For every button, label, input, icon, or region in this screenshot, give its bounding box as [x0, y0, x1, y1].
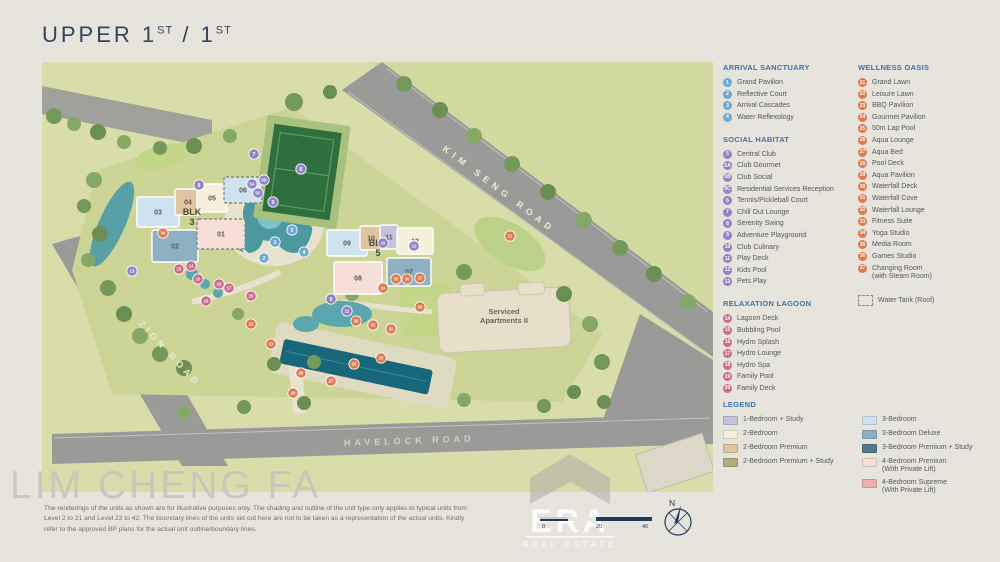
svg-text:7: 7	[253, 152, 256, 158]
svg-text:10: 10	[381, 241, 386, 246]
map-marker-9: 9	[326, 294, 336, 304]
amenity-item: 31Waterfall Cove	[858, 194, 998, 203]
amenity-number-badge: 7	[723, 208, 732, 217]
amenity-number-badge: 31	[858, 194, 867, 203]
amenity-section-social: SOCIAL HABITAT5Central Club5AClub Gourme…	[723, 135, 855, 287]
amenity-label: Fitness Suite	[872, 217, 912, 226]
legend-label: 3-Bedroom Premium + Study	[882, 443, 972, 452]
map-marker-27: 27	[326, 376, 336, 386]
legend-item: 2-Bedroom Premium + Study	[723, 457, 853, 467]
svg-text:21: 21	[508, 234, 513, 239]
svg-text:15: 15	[177, 267, 182, 272]
amenity-label: Grand Lawn	[872, 78, 910, 87]
amenity-label: Family Pool	[737, 372, 774, 381]
map-marker-24: 24	[378, 283, 388, 293]
amenity-number-badge: 13	[723, 277, 732, 286]
site-plan-map: ServicedApartments II	[42, 62, 713, 492]
map-marker-10: 10	[378, 238, 388, 248]
amenity-label: Residential Services Reception	[737, 185, 834, 194]
svg-text:22: 22	[249, 322, 254, 327]
amenity-label: Lagoon Deck	[737, 314, 778, 323]
era-logo-subtext: REAL ESTATE	[523, 539, 618, 549]
legend-label: 3-Bedroom	[882, 415, 917, 424]
amenity-item: 4Water Reflexology	[723, 113, 855, 122]
map-marker-22: 22	[246, 319, 256, 329]
legend-item: 4-Bedroom Premium(With Private Lift)	[862, 457, 992, 474]
unit-number: 03	[154, 210, 162, 217]
map-marker-35: 35	[391, 274, 401, 284]
svg-text:4: 4	[303, 250, 306, 256]
scale-label: 0	[542, 524, 545, 530]
amenity-item: 26Aqua Lounge	[858, 136, 998, 145]
unit-number: 02	[171, 244, 179, 251]
map-marker-7: 7	[249, 149, 259, 159]
amenity-item: 9Adventure Playground	[723, 231, 855, 240]
map-marker-18: 18	[214, 279, 224, 289]
svg-text:33: 33	[418, 305, 423, 310]
amenity-item: 30Waterfall Deck	[858, 182, 998, 191]
map-marker-5B: 5B	[259, 175, 269, 185]
amenity-item: 24Gourmet Pavilion	[858, 113, 998, 122]
svg-text:9: 9	[330, 297, 333, 303]
amenity-number-badge: 34	[858, 229, 867, 238]
svg-text:37: 37	[418, 276, 423, 281]
legend-title: LEGEND	[723, 400, 999, 409]
amenity-number-badge: 21	[858, 78, 867, 87]
map-marker-19: 19	[201, 296, 211, 306]
amenity-item: 5CResidential Services Reception	[723, 185, 855, 194]
water-tank-icon	[858, 295, 873, 306]
amenity-item: 20Family Deck	[723, 384, 855, 393]
amenity-label: Hydro Spa	[737, 361, 770, 370]
svg-text:19: 19	[204, 299, 209, 304]
amenity-item: 15Bubbling Pool	[723, 326, 855, 335]
map-marker-11: 11	[342, 306, 352, 316]
amenity-item: 6Tennis/Pickleball Court	[723, 196, 855, 205]
amenity-item: 32Waterfall Lounge	[858, 206, 998, 215]
amenity-item: 2550m Lap Pool	[858, 124, 998, 133]
svg-text:32: 32	[389, 327, 394, 332]
amenity-label: Chill Out Lounge	[737, 208, 789, 217]
legend-swatch	[862, 430, 877, 439]
map-marker-2: 2	[259, 253, 269, 263]
map-marker-5A: 5A	[247, 179, 257, 189]
amenity-number-badge: 25	[858, 124, 867, 133]
amenity-item: 35Media Room	[858, 240, 998, 249]
amenity-item: 10Club Culinary	[723, 243, 855, 252]
legend-swatch	[862, 458, 877, 467]
map-marker-4: 4	[299, 247, 309, 257]
amenity-item: 37Changing Room(with Steam Room)	[858, 264, 998, 281]
amenity-label: Aqua Lounge	[872, 136, 914, 145]
amenity-item: 17Hydro Lounge	[723, 349, 855, 358]
legend-item: 3-Bedroom Deluxe	[862, 429, 992, 439]
map-marker-29: 29	[288, 388, 298, 398]
map-marker-33: 33	[415, 302, 425, 312]
amenity-label: Leisure Lawn	[872, 90, 914, 99]
legend-swatch	[862, 479, 877, 488]
map-marker-14: 14	[186, 261, 196, 271]
amenity-number-badge: 26	[858, 136, 867, 145]
water-tank-label: Water Tank (Roof)	[878, 296, 934, 305]
amenity-number-badge: 37	[858, 264, 867, 273]
amenity-label: Media Room	[872, 240, 912, 249]
amenity-item: 27Aqua Bed	[858, 148, 998, 157]
unit-number: 08	[354, 276, 362, 283]
map-marker-20: 20	[246, 291, 256, 301]
map-marker-21: 21	[505, 231, 515, 241]
svg-text:35: 35	[394, 277, 399, 282]
amenity-item: 13Pets Play	[723, 277, 855, 286]
amenity-number-badge: 5	[723, 150, 732, 159]
legend-swatch	[723, 458, 738, 467]
amenity-item: 23BBQ Pavilion	[858, 101, 998, 110]
legend-panel-right-column: WELLNESS OASIS21Grand Lawn22Leisure Lawn…	[858, 63, 998, 306]
legend-label: 4-Bedroom Supreme(With Private Lift)	[882, 478, 947, 495]
unit-number: 01	[217, 232, 225, 239]
amenity-number-badge: 4	[723, 113, 732, 122]
svg-text:3: 3	[291, 228, 294, 234]
amenity-number-badge: 23	[858, 101, 867, 110]
amenity-label: Waterfall Deck	[872, 182, 917, 191]
legend-swatch	[723, 416, 738, 425]
map-marker-28: 28	[376, 353, 386, 363]
amenity-number-badge: 12	[723, 266, 732, 275]
unit-footprint: 03	[137, 197, 179, 227]
amenity-label: Water Reflexology	[737, 113, 794, 122]
amenity-label-line2: (with Steam Room)	[872, 273, 932, 281]
agent-watermark: LIM CHENG FA	[10, 464, 321, 508]
scale-label: 20	[596, 524, 602, 530]
map-marker-31: 31	[368, 320, 378, 330]
legend-item: 3-Bedroom Premium + Study	[862, 443, 992, 453]
map-marker-37: 37	[415, 273, 425, 283]
page-title: UPPER 1ST / 1ST	[42, 22, 232, 48]
amenity-item: 11Play Deck	[723, 254, 855, 263]
amenity-section-title: RELAXATION LAGOON	[723, 299, 855, 308]
svg-text:34: 34	[161, 231, 166, 236]
svg-text:27: 27	[329, 379, 334, 384]
amenity-number-badge: 1	[723, 78, 732, 87]
amenity-item: 5Central Club	[723, 150, 855, 159]
amenity-label: Waterfall Cove	[872, 194, 918, 203]
map-marker-16: 16	[193, 274, 203, 284]
amenity-item: 7Chill Out Lounge	[723, 208, 855, 217]
amenity-number-badge: 2	[723, 90, 732, 99]
amenity-item: 19Family Pool	[723, 372, 855, 381]
amenity-item: 8Serenity Swing	[723, 219, 855, 228]
map-marker-30: 30	[351, 316, 361, 326]
amenity-number-badge: 18	[723, 361, 732, 370]
amenity-number-badge: 20	[723, 384, 732, 393]
svg-text:13: 13	[130, 269, 135, 274]
water-tank-legend-entry: Water Tank (Roof)	[858, 295, 998, 306]
amenity-item: 2Reflective Court	[723, 90, 855, 99]
map-marker-36: 36	[402, 274, 412, 284]
map-marker-6: 6	[296, 164, 306, 174]
legend-column-1: 1-Bedroom + Study2-Bedroom2-Bedroom Prem…	[723, 415, 853, 499]
map-marker-26: 26	[296, 368, 306, 378]
amenity-label: Hydro Lounge	[737, 349, 781, 358]
amenity-label: Club Social	[737, 173, 772, 182]
svg-text:25: 25	[352, 362, 357, 367]
amenity-section-wellness: WELLNESS OASIS21Grand Lawn22Leisure Lawn…	[858, 63, 998, 281]
amenity-number-badge: 28	[858, 159, 867, 168]
map-marker-13: 13	[127, 266, 137, 276]
amenity-label: Club Gourmet	[737, 161, 781, 170]
amenity-number-badge: 33	[858, 217, 867, 226]
legend-item: 1-Bedroom + Study	[723, 415, 853, 425]
legend-label-line2: (With Private Lift)	[882, 466, 947, 474]
amenity-label: Gourmet Pavilion	[872, 113, 926, 122]
amenity-label: Pets Play	[737, 277, 767, 286]
unit-number: 06	[239, 188, 247, 195]
svg-text:2: 2	[263, 256, 266, 262]
amenity-label: 50m Lap Pool	[872, 124, 915, 133]
legend-panel-left-column: ARRIVAL SANCTUARY1Grand Pavilion2Reflect…	[723, 63, 855, 406]
amenity-label: Changing Room(with Steam Room)	[872, 264, 932, 281]
amenity-number-badge: 8	[723, 219, 732, 228]
compass: N	[656, 496, 700, 547]
svg-text:36: 36	[405, 277, 410, 282]
amenity-label: Arrival Cascades	[737, 101, 790, 110]
svg-text:12: 12	[412, 244, 417, 249]
amenity-label: Adventure Playground	[737, 231, 806, 240]
amenity-label: Play Deck	[737, 254, 769, 263]
unit-type-legend: LEGEND 1-Bedroom + Study2-Bedroom2-Bedro…	[723, 400, 999, 499]
amenity-item: 22Leisure Lawn	[858, 90, 998, 99]
svg-text:30: 30	[354, 319, 359, 324]
legend-label: 4-Bedroom Premium(With Private Lift)	[882, 457, 947, 474]
svg-text:6: 6	[300, 167, 303, 173]
legend-item: 2-Bedroom Premium	[723, 443, 853, 453]
amenity-number-badge: 24	[858, 113, 867, 122]
legend-item: 3-Bedroom	[862, 415, 992, 425]
amenity-number-badge: 5A	[723, 161, 732, 170]
amenity-item: 29Aqua Pavilion	[858, 171, 998, 180]
amenity-item: 34Yoga Studio	[858, 229, 998, 238]
amenity-number-badge: 16	[723, 338, 732, 347]
map-marker-5C: 5C	[253, 188, 263, 198]
svg-text:20: 20	[249, 294, 254, 299]
amenity-label: BBQ Pavilion	[872, 101, 913, 110]
amenity-label: Tennis/Pickleball Court	[737, 196, 808, 205]
svg-text:29: 29	[291, 391, 296, 396]
map-marker-32: 32	[386, 324, 396, 334]
amenity-label: Pool Deck	[872, 159, 904, 168]
amenity-label: Grand Pavilion	[737, 78, 783, 87]
amenity-section-relaxation: RELAXATION LAGOON14Lagoon Deck15Bubbling…	[723, 299, 855, 393]
map-marker-8: 8	[194, 180, 204, 190]
legend-item: 4-Bedroom Supreme(With Private Lift)	[862, 478, 992, 495]
unit-footprint: 08	[334, 262, 382, 294]
amenity-item: 33Fitness Suite	[858, 217, 998, 226]
amenity-label: Family Deck	[737, 384, 776, 393]
amenity-label: Aqua Bed	[872, 148, 903, 157]
unit-number: 09	[343, 241, 351, 248]
svg-text:26: 26	[299, 371, 304, 376]
amenity-item: 36Games Studio	[858, 252, 998, 261]
amenity-number-badge: 5C	[723, 185, 732, 194]
legend-item: 2-Bedroom	[723, 429, 853, 439]
amenity-section-title: ARRIVAL SANCTUARY	[723, 63, 855, 72]
amenity-label: Bubbling Pool	[737, 326, 780, 335]
amenity-item: 1Grand Pavilion	[723, 78, 855, 87]
amenity-number-badge: 15	[723, 326, 732, 335]
amenity-section-arrival: ARRIVAL SANCTUARY1Grand Pavilion2Reflect…	[723, 63, 855, 122]
svg-text:5B: 5B	[261, 178, 266, 183]
era-house-icon	[530, 454, 610, 504]
svg-text:11: 11	[345, 309, 350, 314]
amenity-number-badge: 17	[723, 349, 732, 358]
amenity-label: Games Studio	[872, 252, 916, 261]
amenity-number-badge: 11	[723, 254, 732, 263]
svg-text:5C: 5C	[255, 191, 260, 196]
amenity-number-badge: 9	[723, 231, 732, 240]
amenity-number-badge: 29	[858, 171, 867, 180]
svg-text:28: 28	[379, 356, 384, 361]
svg-text:17: 17	[227, 286, 232, 291]
legend-swatch	[862, 416, 877, 425]
amenity-number-badge: 10	[723, 243, 732, 252]
amenity-number-badge: 5B	[723, 173, 732, 182]
svg-text:1: 1	[274, 240, 277, 246]
map-marker-1: 1	[270, 237, 280, 247]
amenity-number-badge: 35	[858, 240, 867, 249]
legend-label: 2-Bedroom Premium	[743, 443, 808, 452]
svg-text:24: 24	[381, 286, 386, 291]
amenity-item: 5BClub Social	[723, 173, 855, 182]
amenity-number-badge: 22	[858, 90, 867, 99]
svg-text:18: 18	[217, 282, 222, 287]
scale-label: 40	[642, 524, 648, 530]
amenity-item: 12Kids Pool	[723, 266, 855, 275]
amenity-label: Kids Pool	[737, 266, 767, 275]
amenity-item: 16Hydro Splash	[723, 338, 855, 347]
amenity-label: Club Culinary	[737, 243, 779, 252]
amenity-section-title: WELLNESS OASIS	[858, 63, 998, 72]
amenity-label: Waterfall Lounge	[872, 206, 925, 215]
amenity-label: Reflective Court	[737, 90, 787, 99]
amenity-label: Aqua Pavilion	[872, 171, 915, 180]
legend-label-line2: (With Private Lift)	[882, 487, 947, 495]
svg-text:16: 16	[196, 277, 201, 282]
legend-label: 1-Bedroom + Study	[743, 415, 804, 424]
amenity-item: 21Grand Lawn	[858, 78, 998, 87]
svg-text:31: 31	[371, 323, 376, 328]
amenity-label: Serenity Swing	[737, 219, 784, 228]
map-marker-15: 15	[174, 264, 184, 274]
amenity-number-badge: 3	[723, 101, 732, 110]
amenity-item: 18Hydro Spa	[723, 361, 855, 370]
svg-text:5: 5	[272, 200, 275, 206]
amenity-number-badge: 19	[723, 372, 732, 381]
amenity-label: Yoga Studio	[872, 229, 910, 238]
amenity-section-title: SOCIAL HABITAT	[723, 135, 855, 144]
amenity-item: 14Lagoon Deck	[723, 314, 855, 323]
amenity-number-badge: 6	[723, 196, 732, 205]
map-marker-17: 17	[224, 283, 234, 293]
unit-number: 04	[184, 200, 192, 207]
legend-label: 3-Bedroom Deluxe	[882, 429, 940, 438]
map-marker-12: 12	[409, 241, 419, 251]
map-marker-34: 34	[158, 228, 168, 238]
legend-label: 2-Bedroom	[743, 429, 778, 438]
legend-label: 2-Bedroom Premium + Study	[743, 457, 833, 466]
map-marker-25: 25	[349, 359, 359, 369]
amenity-number-badge: 30	[858, 182, 867, 191]
amenity-number-badge: 14	[723, 314, 732, 323]
amenity-label: Central Club	[737, 150, 776, 159]
legend-column-2: 3-Bedroom3-Bedroom Deluxe3-Bedroom Premi…	[862, 415, 992, 499]
svg-text:5A: 5A	[249, 182, 254, 187]
disclaimer-text: The renderings of the units as shown are…	[44, 504, 474, 535]
amenity-number-badge: 27	[858, 148, 867, 157]
amenity-item: 3Arrival Cascades	[723, 101, 855, 110]
svg-text:23: 23	[269, 342, 274, 347]
scale-bar: 02040	[540, 517, 652, 535]
map-marker-5: 5	[268, 197, 278, 207]
svg-text:14: 14	[189, 264, 194, 269]
map-marker-23: 23	[266, 339, 276, 349]
unit-number: 05	[208, 196, 216, 203]
amenity-item: 28Pool Deck	[858, 159, 998, 168]
legend-swatch	[862, 444, 877, 453]
unit-footprint: 01	[197, 219, 245, 249]
amenity-item: 5AClub Gourmet	[723, 161, 855, 170]
legend-swatch	[723, 444, 738, 453]
svg-text:8: 8	[198, 183, 201, 189]
amenity-number-badge: 32	[858, 206, 867, 215]
amenity-label: Hydro Splash	[737, 338, 779, 347]
compass-north-label: N	[669, 498, 675, 508]
map-marker-3: 3	[287, 225, 297, 235]
amenity-number-badge: 36	[858, 252, 867, 261]
legend-swatch	[723, 430, 738, 439]
